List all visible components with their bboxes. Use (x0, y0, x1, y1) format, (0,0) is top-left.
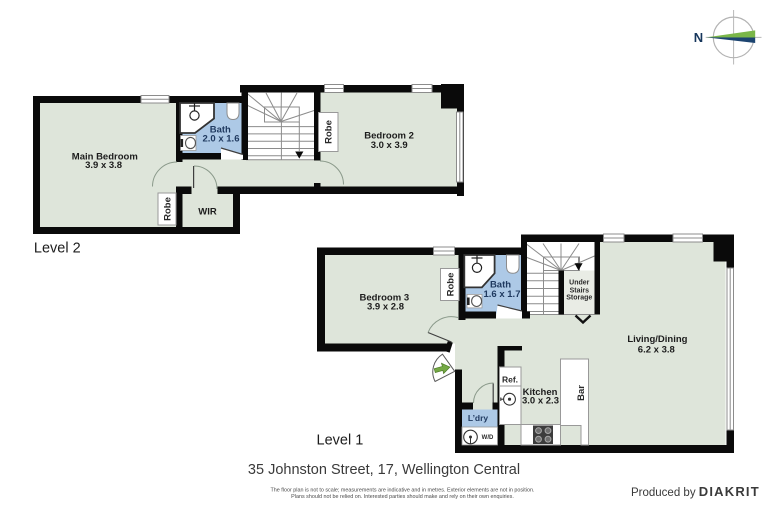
svg-text:Robe: Robe (446, 273, 457, 297)
svg-text:Storage: Storage (566, 295, 592, 302)
svg-text:6.2 x 3.8: 6.2 x 3.8 (638, 345, 675, 356)
svg-text:Robe: Robe (324, 120, 335, 144)
svg-text:3.9 x 3.8: 3.9 x 3.8 (85, 160, 122, 171)
svg-text:1.6 x 1.7: 1.6 x 1.7 (484, 289, 521, 300)
svg-text:Ref.: Ref. (502, 375, 518, 385)
svg-text:Produced by DIAKRIT: Produced by DIAKRIT (631, 484, 760, 499)
svg-text:35 Johnston Street, 17, Wellin: 35 Johnston Street, 17, Wellington Centr… (248, 462, 520, 478)
svg-text:Level 2: Level 2 (34, 241, 81, 257)
svg-text:L’dry: L’dry (468, 413, 489, 423)
svg-text:Under: Under (569, 280, 590, 287)
svg-text:3.9 x 2.8: 3.9 x 2.8 (367, 302, 404, 313)
svg-text:3.0 x 2.3: 3.0 x 2.3 (522, 395, 559, 406)
svg-text:Stairs: Stairs (570, 287, 590, 294)
svg-text:WIR: WIR (198, 206, 217, 217)
svg-text:Level 1: Level 1 (317, 432, 364, 448)
svg-text:N: N (694, 30, 703, 45)
svg-text:W/D: W/D (482, 435, 494, 441)
svg-text:The floor plan is not to scale: The floor plan is not to scale; measurem… (271, 488, 535, 494)
svg-text:3.0 x 3.9: 3.0 x 3.9 (371, 140, 408, 151)
svg-text:2.0 x 1.6: 2.0 x 1.6 (203, 134, 240, 145)
svg-text:Robe: Robe (163, 197, 174, 221)
svg-text:Living/Dining: Living/Dining (627, 334, 687, 345)
svg-text:Bar: Bar (576, 385, 587, 401)
svg-text:Plans should not be relied on.: Plans should not be relied on. Intereste… (291, 494, 514, 500)
